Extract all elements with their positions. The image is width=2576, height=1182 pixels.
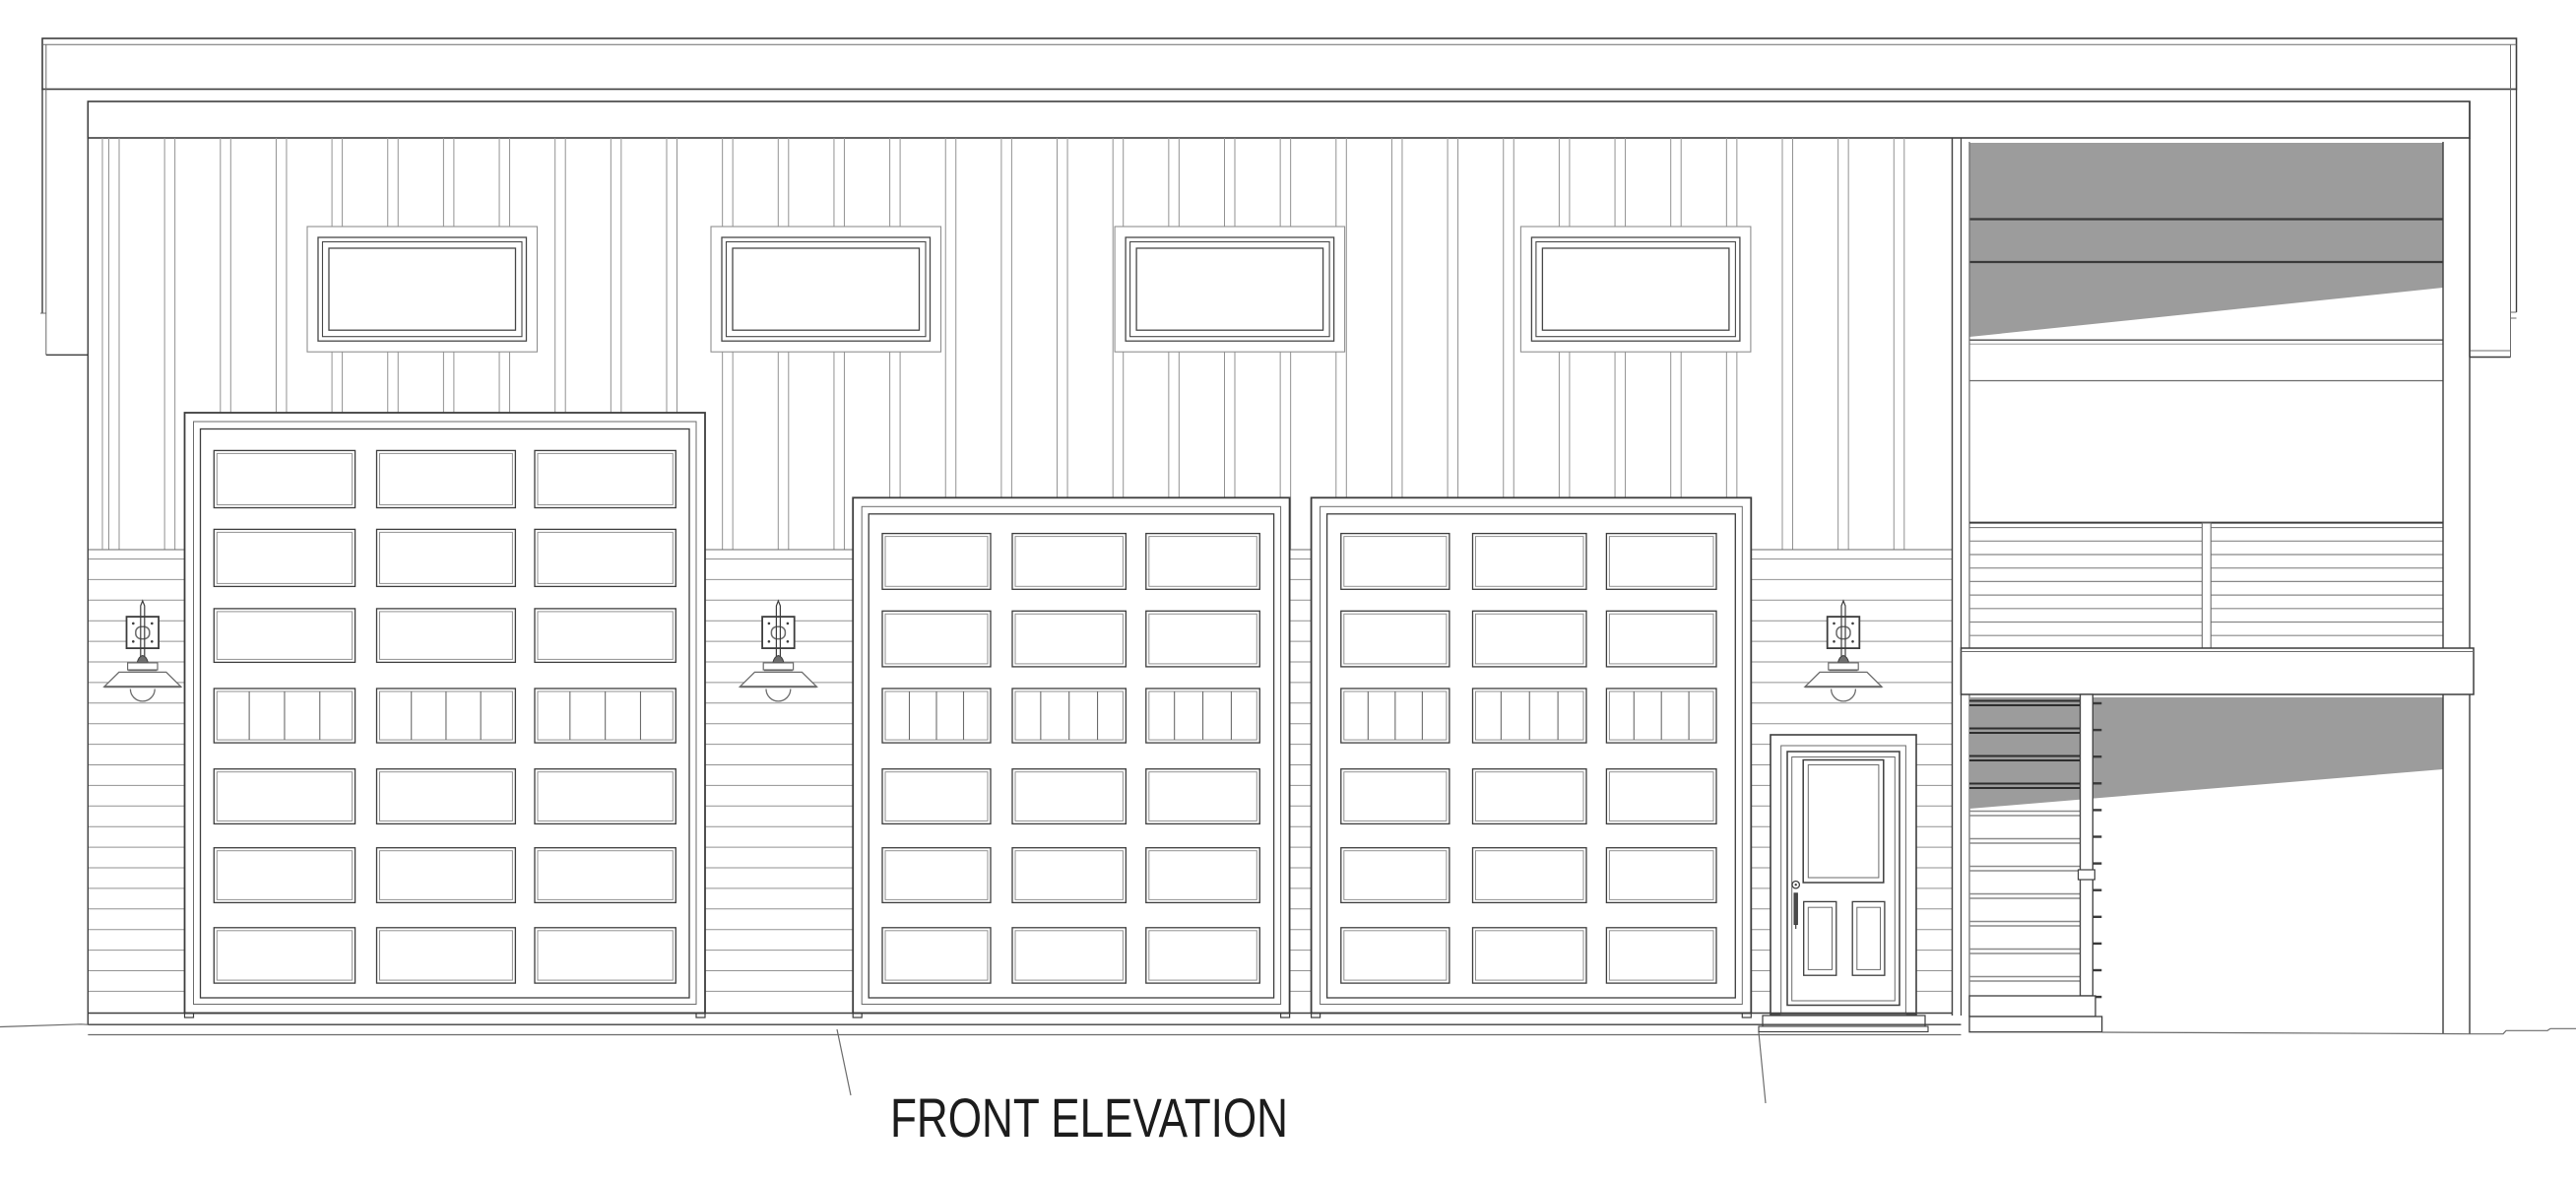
svg-text:FRONT ELEVATION: FRONT ELEVATION (890, 1086, 1288, 1149)
